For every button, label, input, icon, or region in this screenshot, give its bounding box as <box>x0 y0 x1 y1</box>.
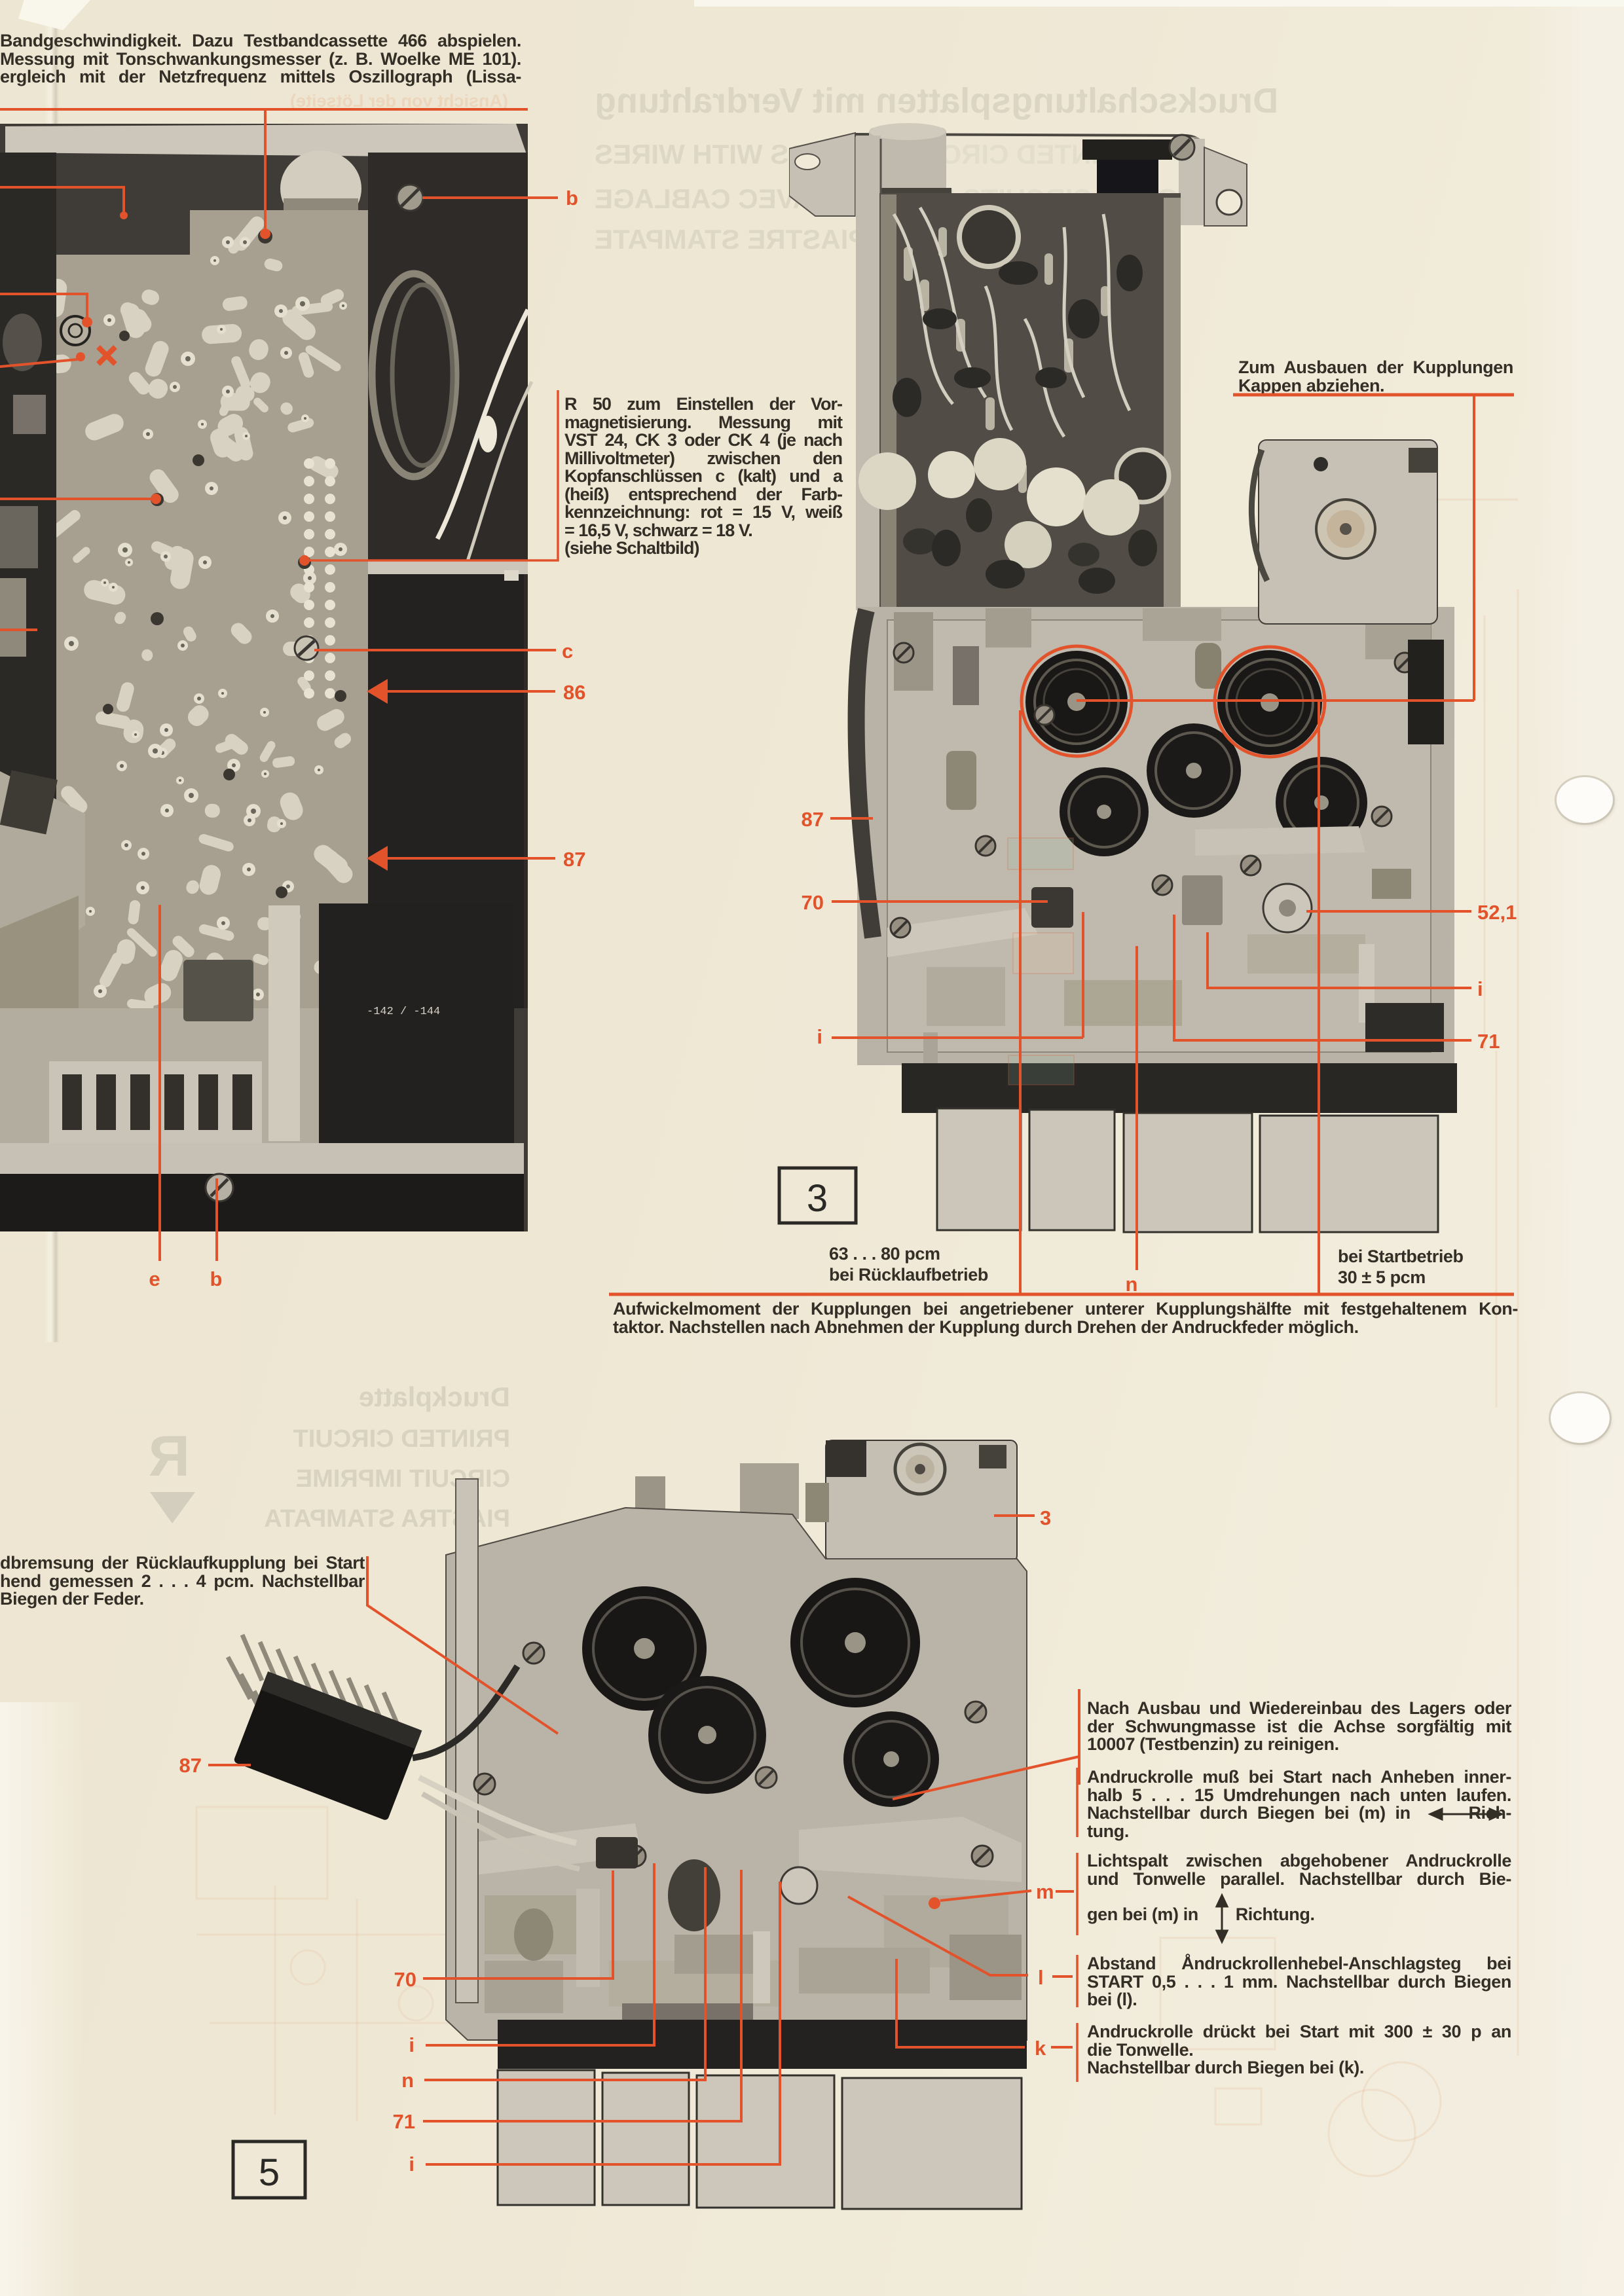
svg-text:87: 87 <box>802 808 824 831</box>
svg-text:m: m <box>1036 1880 1054 1903</box>
svg-text:3: 3 <box>1040 1506 1051 1529</box>
svg-text:b: b <box>566 187 578 210</box>
svg-text:k: k <box>1035 2037 1046 2060</box>
svg-text:i: i <box>1477 977 1483 1000</box>
svg-text:i: i <box>409 2033 415 2056</box>
svg-text:n: n <box>1126 1273 1138 1296</box>
svg-text:e: e <box>149 1267 160 1290</box>
svg-text:l: l <box>1038 1966 1044 1989</box>
svg-text:70: 70 <box>394 1968 416 1991</box>
svg-text:87: 87 <box>563 848 585 871</box>
svg-text:70: 70 <box>802 891 824 914</box>
svg-text:c: c <box>562 640 573 663</box>
svg-text:b: b <box>210 1267 223 1290</box>
svg-text:n: n <box>401 2069 414 2092</box>
svg-text:87: 87 <box>179 1754 202 1777</box>
svg-text:71: 71 <box>393 2110 415 2133</box>
svg-text:i: i <box>409 2153 415 2176</box>
svg-text:52,1: 52,1 <box>1477 901 1517 924</box>
svg-text:i: i <box>817 1025 822 1048</box>
svg-text:71: 71 <box>1477 1030 1500 1053</box>
svg-text:5: 5 <box>259 2151 280 2194</box>
svg-text:3: 3 <box>807 1177 828 1220</box>
svg-text:86: 86 <box>563 681 585 704</box>
